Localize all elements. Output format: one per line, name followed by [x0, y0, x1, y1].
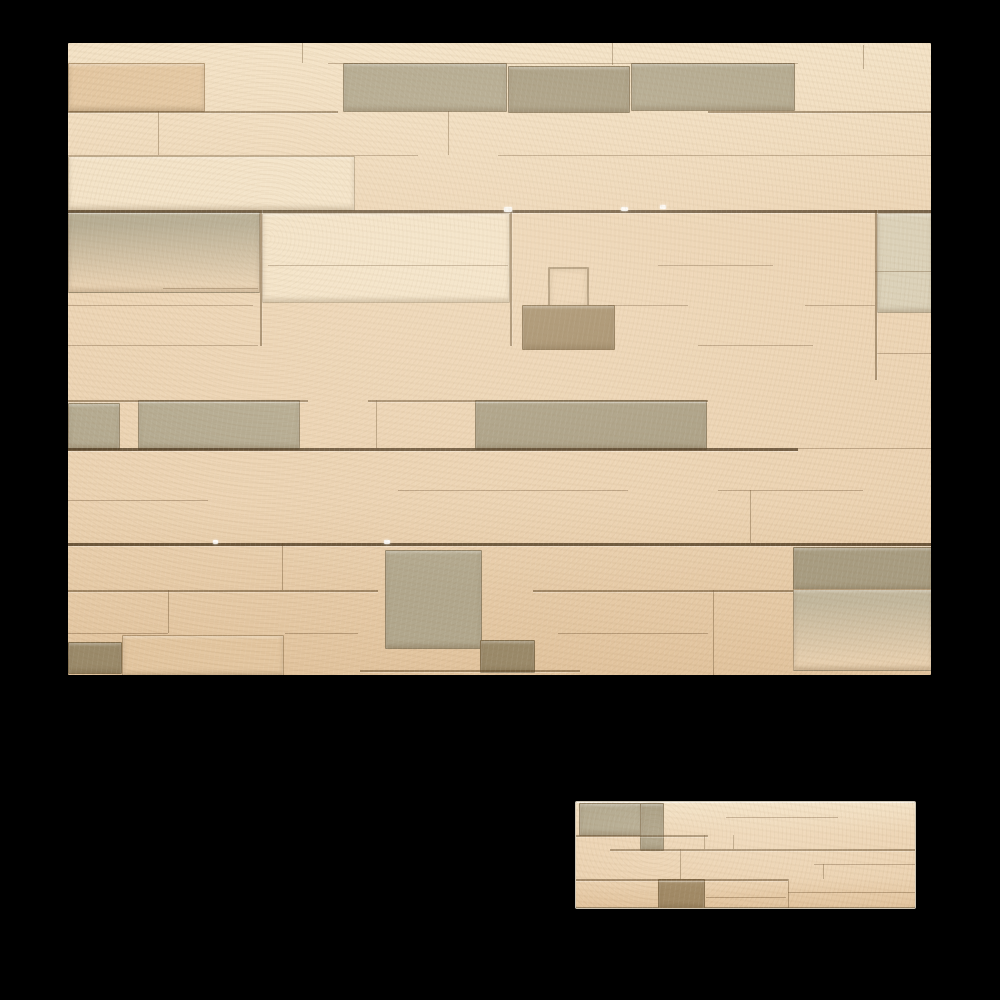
mortar-seam	[498, 155, 931, 156]
stone-block	[793, 547, 931, 591]
mortar-seam	[68, 500, 208, 501]
stone-joint	[713, 590, 714, 675]
stone-block	[522, 305, 615, 350]
stone-joint	[733, 835, 734, 849]
mortar-seam	[576, 835, 708, 837]
stone-block	[262, 213, 510, 303]
stone-block	[579, 803, 643, 836]
mortar-seam	[558, 633, 708, 634]
stone-joint	[875, 210, 877, 380]
mortar-seam	[163, 288, 258, 289]
mortar-seam	[268, 265, 508, 266]
highlight-speck	[660, 205, 666, 209]
mortar-seam	[788, 892, 915, 893]
mortar-seam	[68, 305, 253, 306]
mortar-seam	[360, 670, 580, 672]
mortar-seam	[610, 849, 915, 851]
mortar-seam	[718, 490, 863, 491]
stone-block	[68, 63, 205, 112]
stone-block	[475, 400, 707, 450]
stone-joint	[788, 879, 789, 908]
mortar-seam	[68, 543, 931, 546]
mortar-seam	[68, 210, 931, 213]
stone-block	[793, 589, 931, 671]
mortar-seam	[798, 448, 931, 449]
stone-block	[631, 63, 795, 111]
highlight-speck	[621, 207, 628, 211]
stone-block	[548, 267, 589, 309]
mortar-seam	[706, 897, 786, 898]
stone-block	[68, 211, 260, 293]
mortar-seam	[658, 265, 773, 266]
stage	[0, 0, 1000, 1000]
mortar-seam	[68, 111, 338, 113]
mortar-seam	[328, 63, 798, 64]
stone-joint	[168, 590, 169, 633]
stone-joint	[260, 210, 262, 346]
mortar-seam	[698, 345, 813, 346]
mortar-seam	[68, 155, 418, 156]
highlight-speck	[504, 207, 512, 212]
mortar-seam	[875, 271, 931, 272]
mortar-seam	[877, 353, 931, 354]
stone-block	[343, 63, 507, 112]
mortar-seam	[533, 590, 793, 592]
mortar-seam	[68, 448, 798, 451]
stone-joint	[282, 543, 283, 590]
stone-block	[138, 400, 300, 450]
stone-block	[68, 156, 355, 211]
mortar-seam	[708, 111, 931, 113]
stone-block	[508, 66, 630, 113]
stone-block	[877, 213, 931, 313]
stone-joint	[823, 864, 824, 879]
stone-joint	[510, 210, 512, 346]
mortar-seam	[68, 400, 308, 402]
mortar-seam	[68, 345, 258, 346]
stone-joint	[448, 111, 449, 155]
mortar-seam	[368, 400, 708, 402]
stone-block	[640, 803, 664, 851]
stone-block	[122, 635, 284, 675]
stone-joint	[302, 43, 303, 63]
stone-block	[68, 642, 122, 674]
mortar-seam	[726, 817, 838, 818]
mortar-seam	[285, 633, 358, 634]
stone-joint	[863, 45, 864, 69]
stone-block	[658, 879, 705, 908]
stone-joint	[158, 111, 159, 155]
stone-joint	[704, 835, 705, 849]
mortar-seam	[68, 590, 378, 592]
mortar-seam	[814, 864, 915, 865]
stone-block	[480, 640, 535, 673]
mortar-seam	[398, 490, 628, 491]
stone-block	[385, 550, 482, 649]
stone-panel-small-image[interactable]	[576, 802, 915, 908]
stone-joint	[750, 490, 751, 543]
stone-wall-large-image[interactable]	[68, 43, 931, 675]
mortar-seam	[608, 305, 688, 306]
mortar-seam	[805, 305, 875, 306]
highlight-speck	[384, 540, 390, 544]
mortar-seam	[576, 879, 788, 881]
stone-block	[68, 403, 120, 450]
stone-joint	[376, 400, 377, 448]
highlight-speck	[213, 540, 218, 544]
stone-joint	[680, 849, 681, 879]
mortar-seam	[68, 633, 168, 634]
stone-joint	[612, 43, 613, 65]
